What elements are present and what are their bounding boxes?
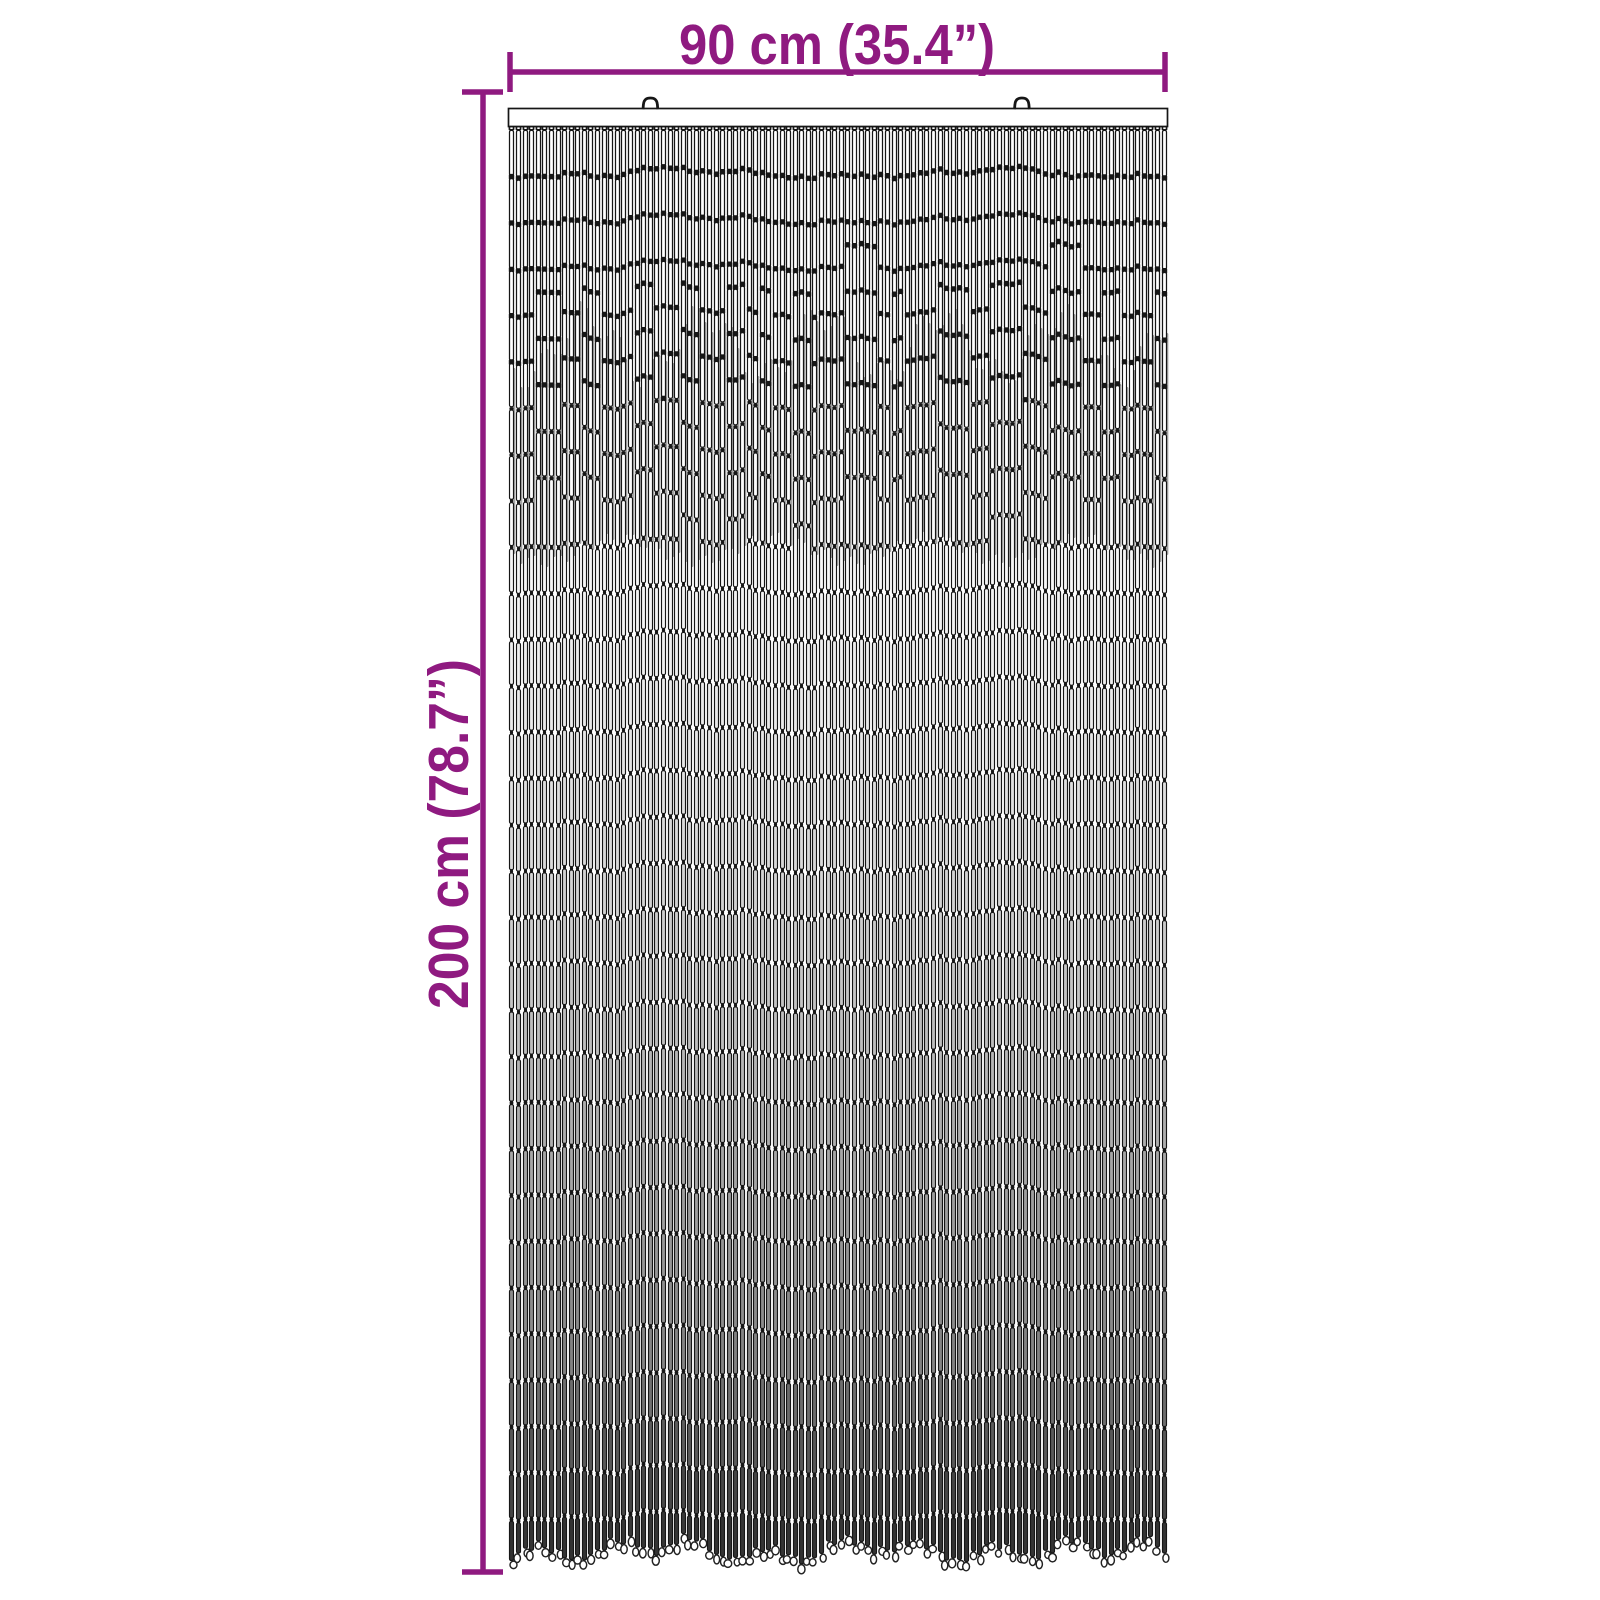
svg-text:90 cm (35.4”): 90 cm (35.4”) (679, 13, 995, 77)
svg-text:200 cm (78.7”): 200 cm (78.7”) (417, 659, 481, 1009)
